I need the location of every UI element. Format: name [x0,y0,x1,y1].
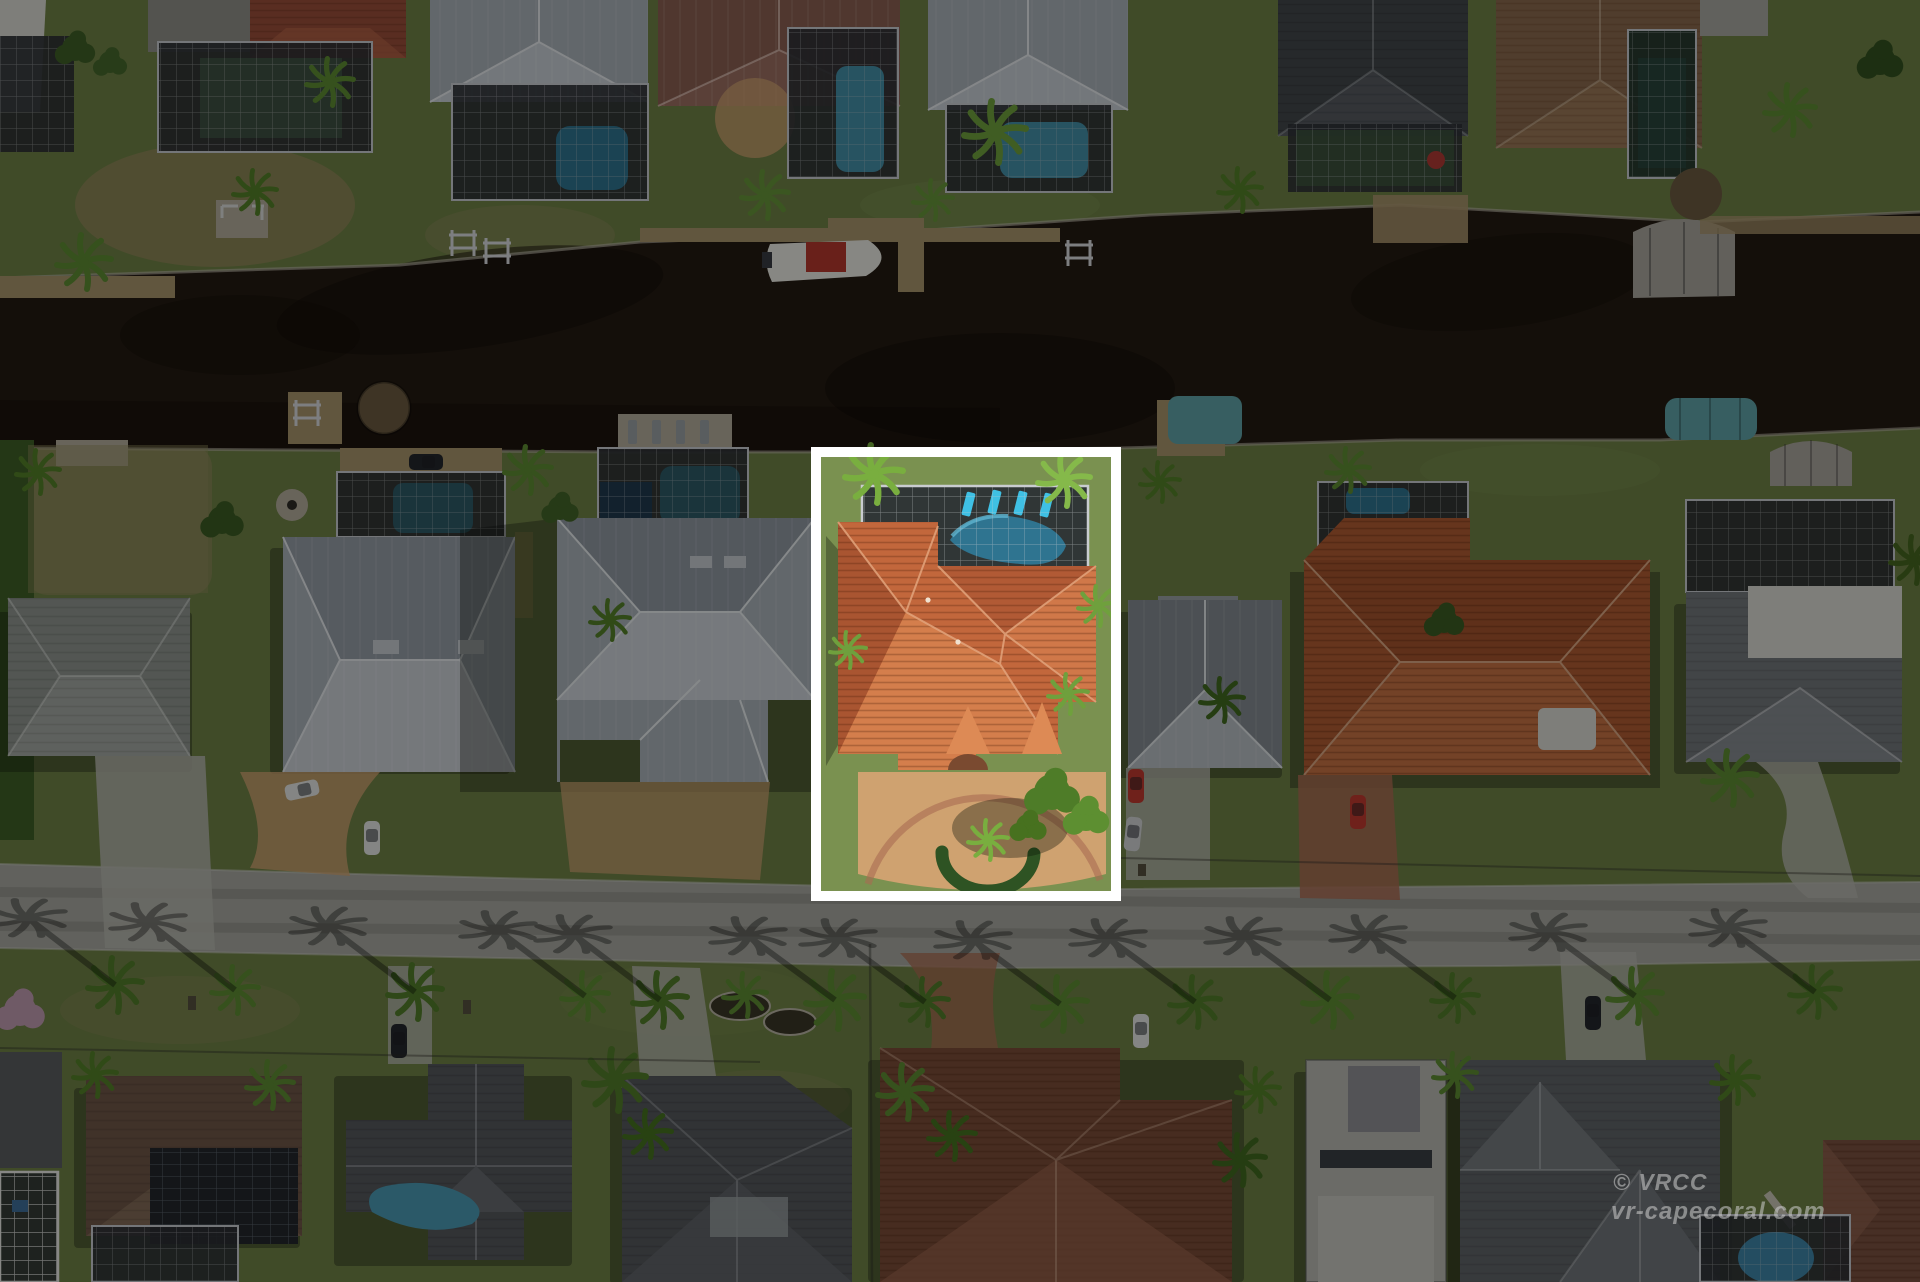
aerial-photo: © VRCC vr-capecoral.com [0,0,1920,1282]
watermark-line1: © VRCC [1613,1169,1708,1195]
roof-vent [925,597,930,602]
roof-vent [955,639,960,644]
watermark-line2: vr-capecoral.com [1611,1198,1826,1225]
aerial-photo-stage: © VRCC vr-capecoral.com [0,0,1920,1282]
